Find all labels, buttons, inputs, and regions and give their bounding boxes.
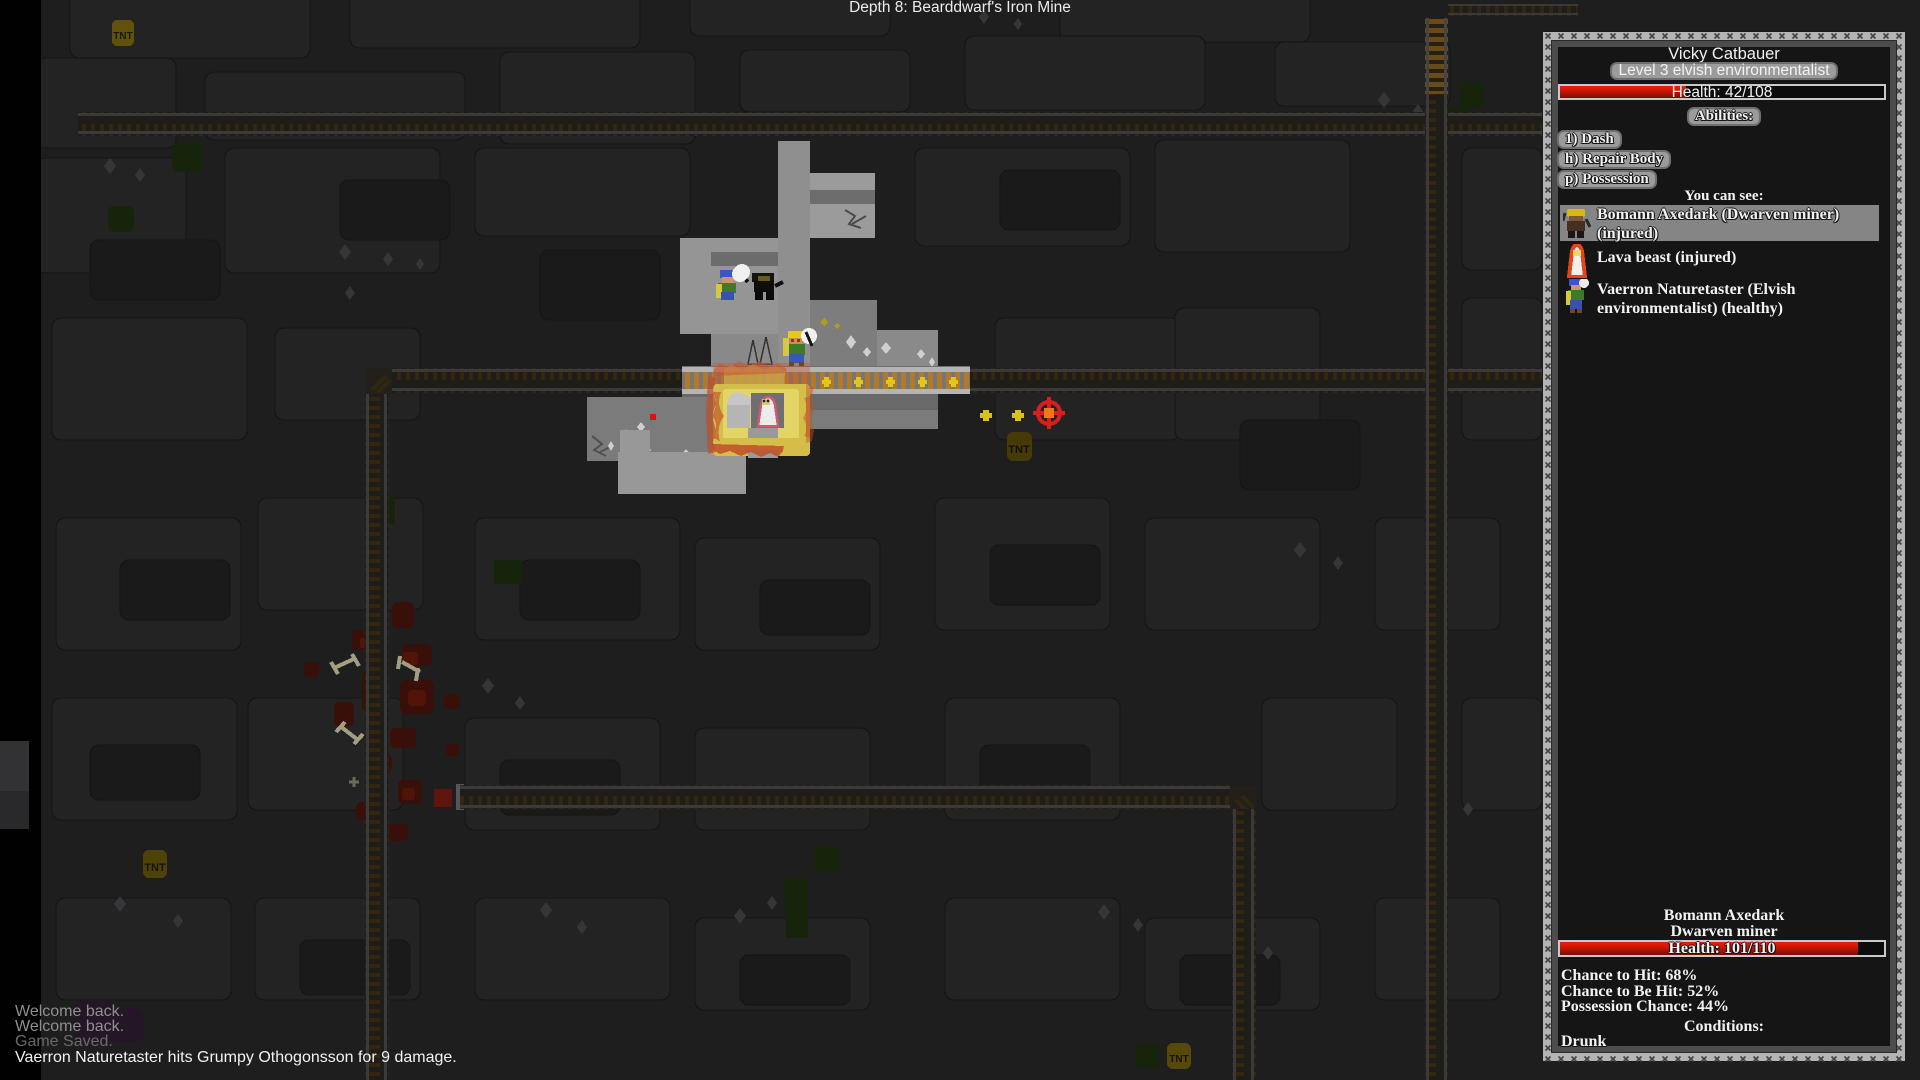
svg-text:TNT: TNT (113, 31, 132, 42)
svg-text:TNT: TNT (144, 862, 166, 874)
svg-text:TNT: TNT (1008, 444, 1030, 456)
svg-text:TNT: TNT (1169, 1054, 1188, 1065)
